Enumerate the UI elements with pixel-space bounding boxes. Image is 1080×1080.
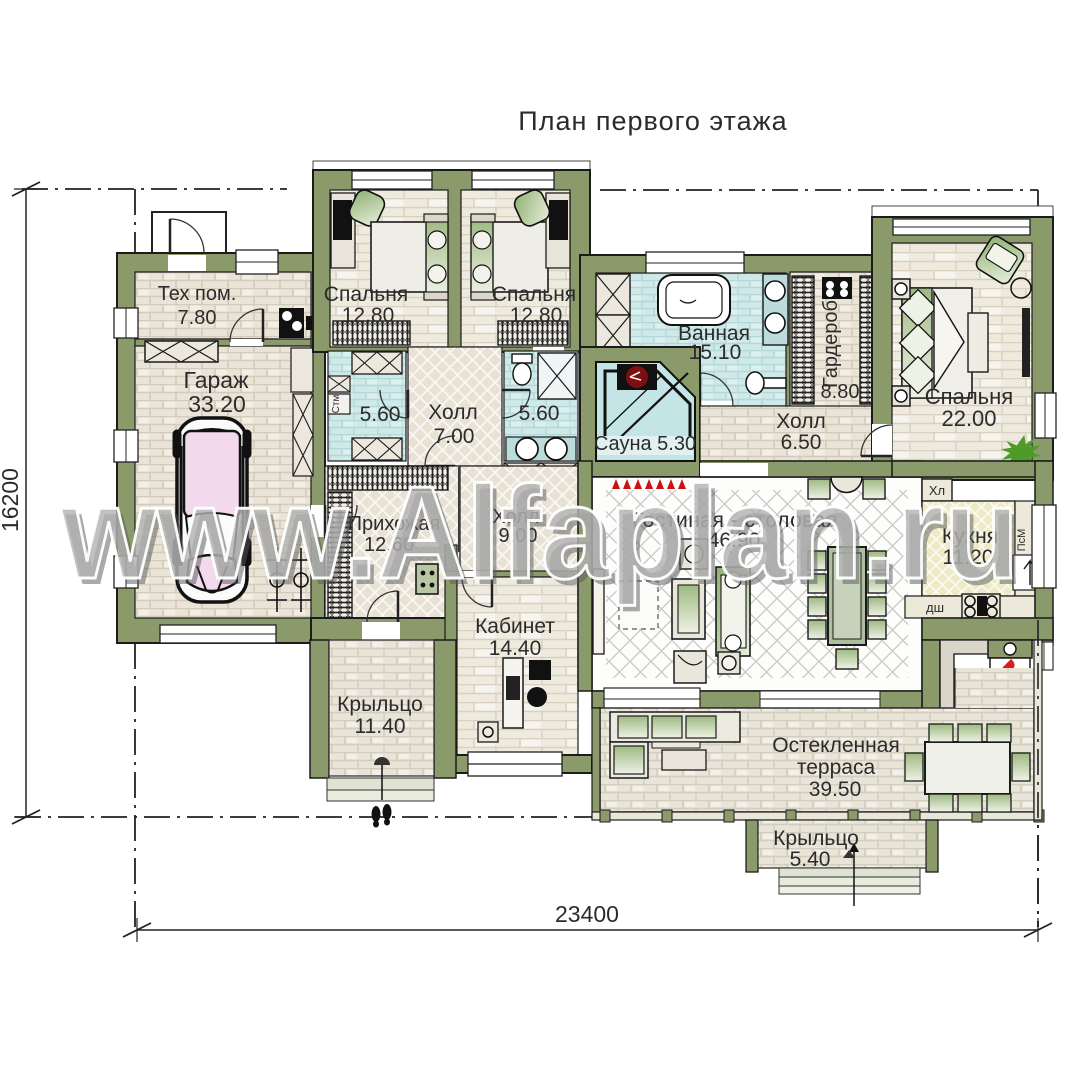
svg-text:22.00: 22.00 bbox=[941, 406, 996, 431]
svg-text:39.50: 39.50 bbox=[809, 778, 862, 801]
svg-text:7.00: 7.00 bbox=[434, 425, 475, 448]
svg-text:15.10: 15.10 bbox=[689, 341, 742, 364]
svg-text:Кабинет: Кабинет bbox=[475, 615, 555, 638]
svg-text:5.60: 5.60 bbox=[519, 402, 560, 425]
svg-text:33.20: 33.20 bbox=[188, 391, 246, 417]
svg-text:Гардероб: Гардероб bbox=[820, 300, 842, 388]
svg-text:5.60: 5.60 bbox=[360, 403, 401, 426]
svg-text:12.80: 12.80 bbox=[342, 304, 395, 327]
svg-text:Крыльцо: Крыльцо bbox=[773, 827, 859, 850]
svg-text:8.80: 8.80 bbox=[821, 381, 860, 403]
svg-text:5.40: 5.40 bbox=[790, 848, 831, 871]
svg-text:терраса: терраса bbox=[797, 756, 876, 779]
svg-text:6.50: 6.50 bbox=[781, 431, 822, 454]
svg-text:11.40: 11.40 bbox=[355, 715, 406, 738]
svg-text:План первого этажа: План первого этажа bbox=[518, 106, 787, 136]
svg-text:Холл: Холл bbox=[776, 410, 826, 433]
svg-text:Крыльцо: Крыльцо bbox=[337, 693, 423, 716]
svg-text:7.80: 7.80 bbox=[178, 307, 217, 329]
svg-text:Гараж: Гараж bbox=[184, 367, 250, 393]
svg-text:14.40: 14.40 bbox=[489, 637, 542, 660]
svg-text:Стм: Стм bbox=[331, 395, 342, 414]
svg-text:Остекленная: Остекленная bbox=[772, 734, 900, 757]
svg-text:Тех пом.: Тех пом. bbox=[158, 283, 237, 305]
svg-text:Холл: Холл bbox=[428, 401, 478, 424]
svg-text:12.80: 12.80 bbox=[510, 304, 563, 327]
svg-text:Сауна 5.30: Сауна 5.30 bbox=[594, 433, 696, 455]
svg-text:23400: 23400 bbox=[555, 901, 619, 927]
svg-text:Спальня: Спальня bbox=[492, 283, 576, 306]
svg-text:16200: 16200 bbox=[0, 468, 23, 532]
svg-text:www.Alfaplan.ru: www.Alfaplan.ru bbox=[60, 459, 1019, 606]
svg-text:Спальня: Спальня bbox=[324, 283, 408, 306]
